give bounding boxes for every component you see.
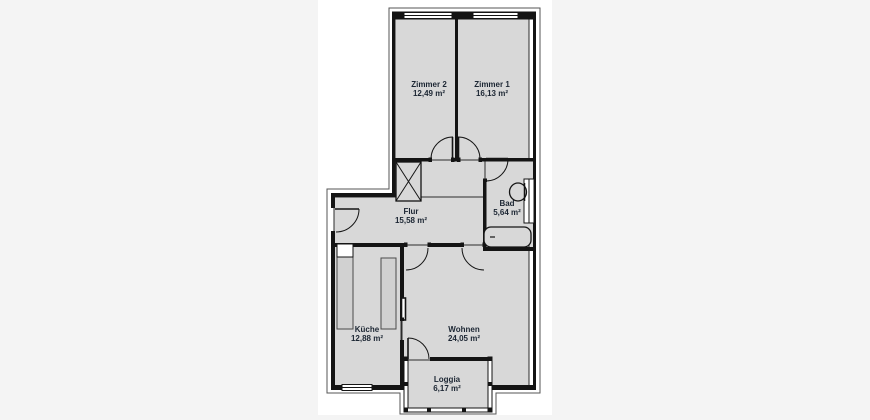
label-wohnen-area: 24,05 m² xyxy=(448,334,480,343)
floor-plan-drawing: Zimmer 2 12,49 m² Zimmer 1 16,13 m² Flur… xyxy=(0,0,870,420)
label-wohnen-name: Wohnen xyxy=(448,325,480,334)
label-flur-area: 15,58 m² xyxy=(395,216,427,225)
window-kueche-bottom xyxy=(342,385,372,391)
floor-plan-viewer: Zimmer 2 12,49 m² Zimmer 1 16,13 m² Flur… xyxy=(0,0,870,420)
window-zimmer1 xyxy=(473,13,518,19)
kitchen-counter-left xyxy=(337,256,353,329)
window-bad xyxy=(524,179,534,223)
label-zimmer2-area: 12,49 m² xyxy=(413,89,445,98)
label-bad-name: Bad xyxy=(499,199,514,208)
label-zimmer1-area: 16,13 m² xyxy=(476,89,508,98)
door-kueche-leaf xyxy=(402,298,406,320)
shaft-x-icon xyxy=(396,162,421,201)
label-loggia-area: 6,17 m² xyxy=(433,384,461,393)
label-kueche-name: Küche xyxy=(355,325,380,334)
window-zimmer2 xyxy=(404,13,452,19)
label-kueche-area: 12,88 m² xyxy=(351,334,383,343)
label-bad-area: 5,64 m² xyxy=(493,208,521,217)
label-loggia-name: Loggia xyxy=(434,375,461,384)
label-zimmer2-name: Zimmer 2 xyxy=(411,80,447,89)
label-zimmer1-name: Zimmer 1 xyxy=(474,80,510,89)
pass-through-kueche xyxy=(337,244,353,257)
bathtub-icon xyxy=(484,227,531,247)
kitchen-counter-right xyxy=(381,258,396,329)
label-flur-name: Flur xyxy=(403,207,418,216)
